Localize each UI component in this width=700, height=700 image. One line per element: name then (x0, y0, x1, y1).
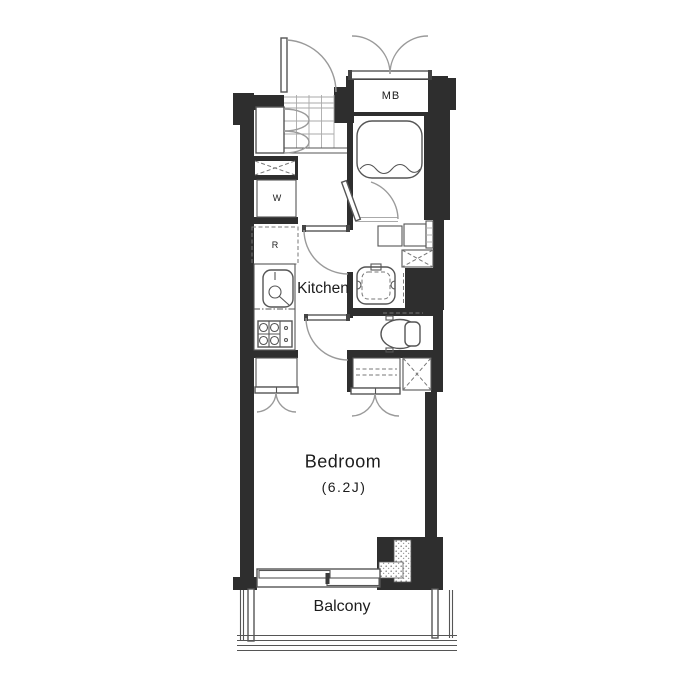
bedroom-size-label: (6.2J) (322, 479, 367, 495)
bathroom-door-swing (371, 182, 398, 219)
vanity-counter (404, 224, 426, 246)
towel-shelf (426, 221, 433, 248)
floorplan-canvas: MB W R Kitchen Bedroom (6.2J) Balcony (0, 0, 700, 700)
kitchen-label: Kitchen (297, 280, 349, 298)
kitchen-sink (263, 270, 293, 307)
balcony-label: Balcony (314, 598, 371, 616)
washer-label: W (273, 193, 282, 203)
bathroom (342, 121, 422, 222)
balcony-post (432, 589, 438, 638)
meter-box-doors (348, 36, 432, 80)
cabinet-door-swing (257, 393, 276, 412)
washroom-door-leaf (304, 226, 348, 231)
window-latch (326, 573, 330, 584)
shoe-cabinet (256, 107, 284, 153)
washroom-door-swing (304, 230, 348, 274)
bedroom-label: Bedroom (305, 452, 382, 473)
meter-box-door-swing (352, 36, 390, 74)
washbasin (357, 267, 395, 304)
closets (255, 358, 431, 416)
pipe-shaft-notch (405, 268, 443, 310)
toilet-door-leaf (306, 315, 348, 320)
column-hatch (379, 562, 403, 578)
storage-cabinet (256, 358, 297, 387)
toilet-door-swing (306, 318, 348, 360)
entry-door-leaf (281, 38, 287, 92)
entry-door-swing (287, 40, 336, 92)
balcony-railing (237, 636, 457, 651)
refrigerator-label: R (272, 240, 279, 250)
toilet-tank (405, 322, 420, 346)
closet (353, 358, 400, 388)
pipe-space (402, 250, 433, 267)
meter-box-label: MB (382, 90, 401, 102)
vanity-counter (378, 226, 402, 246)
floorplan-drawing (0, 0, 700, 700)
closet-door-swing (352, 394, 375, 416)
balcony-post (248, 589, 254, 641)
bathtub (357, 121, 422, 178)
